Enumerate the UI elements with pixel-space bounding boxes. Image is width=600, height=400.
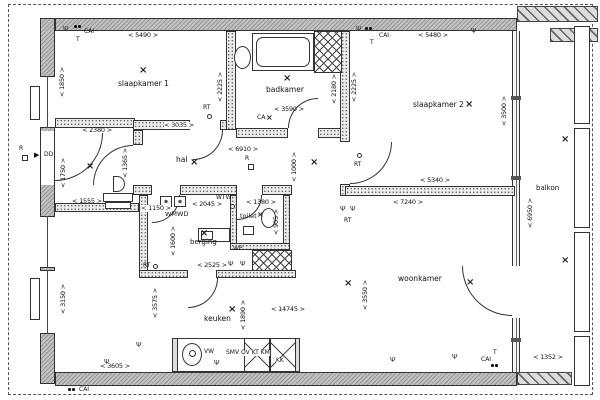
washbasin-badkamer (234, 46, 251, 69)
rt-vent-icon (207, 114, 212, 119)
dim-6910: < 6910 > (228, 146, 258, 153)
light-icon: × (310, 158, 318, 168)
wtw-label: WTW (216, 195, 232, 201)
rt-label: RT (143, 263, 150, 269)
t-label-top-right: T (370, 40, 374, 46)
dim-1365: < 1365 > (122, 144, 129, 178)
dim-1150: < 1150 > (141, 205, 171, 212)
wall-hal-bottom-1 (133, 185, 152, 195)
wall-badkamer-left (226, 31, 236, 130)
facade-glassline (516, 31, 517, 372)
dim-3150: < 3150 > (60, 278, 67, 314)
dim-2045: < 2045 > (192, 201, 222, 208)
meter-box-icon (22, 155, 28, 161)
rt-vent-icon (153, 264, 158, 269)
entrance-arrow-icon: ▶ (34, 152, 39, 159)
meter-box-icon (248, 164, 254, 170)
light-icon: × (561, 135, 569, 145)
balcony-railing-panel (574, 232, 590, 332)
wall-berging-bottom-2 (216, 270, 296, 278)
bathtub-inner (256, 37, 310, 67)
dim-2380: < 2380 > (82, 127, 112, 134)
dim-3590: < 3590 > (274, 106, 304, 113)
kitchen-tap (189, 350, 196, 357)
washer-box-wd (174, 196, 186, 207)
rt-label: RT (203, 105, 210, 111)
cai-dots-icon (365, 27, 368, 30)
dim-3575: < 3575 > (152, 282, 159, 318)
ca-label: CA (257, 115, 265, 121)
socket-icon: Ψ (63, 26, 69, 33)
facade-tick (511, 338, 521, 342)
window-glassline (47, 270, 48, 334)
dim-2225-right: < 2225 > (351, 66, 358, 102)
socket-icon: Ψ (214, 360, 220, 367)
window-glassline (47, 76, 48, 128)
rt-label: RT (354, 162, 361, 168)
kk-label: KK (276, 358, 284, 364)
front-door-opening (41, 131, 54, 185)
wall-toilet-left (230, 195, 237, 245)
dim-7240: < 7240 > (393, 199, 423, 206)
balcony-door-opening (511, 266, 521, 318)
light-icon: × (266, 114, 273, 122)
room-label-berging: berging (190, 239, 217, 246)
socket-icon: Ψ (356, 26, 362, 33)
dim-1750: < 1750 > (60, 152, 67, 188)
light-icon: × (257, 211, 264, 219)
socket-icon: Ψ (228, 261, 234, 268)
socket-icon: Ψ (350, 206, 356, 213)
light-icon: × (86, 162, 94, 172)
dim-1000: < 1000 > (291, 146, 298, 182)
r-label-entree: R (19, 146, 23, 152)
kitchen-counter-post-left (172, 338, 178, 372)
dim-1600: < 1600 > (170, 220, 177, 256)
light-icon: × (465, 100, 473, 110)
wall-slaapkamer2-bottom (345, 186, 515, 196)
installation-shaft (314, 31, 342, 73)
room-label-slaapkamer2: slaapkamer 2 (413, 101, 464, 109)
wall-neighbour-top (517, 6, 598, 22)
meterkast-cabinet-2 (105, 202, 131, 209)
wall-berging-bottom-1 (139, 270, 188, 278)
dim-1352: < 1352 > (533, 354, 563, 361)
balcony-railing-panel (574, 128, 590, 228)
room-label-badkamer: badkamer (266, 86, 304, 94)
dim-5340: < 5340 > (420, 177, 450, 184)
balcony-railing-panel (574, 26, 590, 124)
smv-ov-kt-km-label: SMV OV KT KM (226, 350, 270, 356)
dim-1890: < 1890 > (240, 294, 247, 330)
cv-shaft-block (252, 250, 292, 271)
dim-14745: < 14745 > (271, 306, 305, 313)
meterkast-cabinet (103, 193, 133, 202)
room-label-toilet: toilet (240, 213, 257, 220)
dim-5480: < 5480 > (418, 32, 448, 39)
light-icon: × (466, 278, 474, 288)
appliance-box-kk (270, 338, 296, 372)
dim-2525: < 2525 > (197, 262, 227, 269)
window-sill-outer-1 (30, 86, 40, 120)
balcony-slab-bottom (517, 372, 572, 385)
floor-plan-canvas: slaapkamer 1 badkamer slaapkamer 2 hal W… (0, 0, 600, 400)
dim-1380: < 1380 > (246, 199, 276, 206)
balcony-railing-panel (574, 336, 590, 386)
cai-label-bottom-left: CAI (79, 387, 89, 393)
cai-label-top-left: CAI (84, 29, 94, 35)
dim-2225-left: < 2225 > (217, 66, 224, 102)
room-label-slaapkamer1: slaapkamer 1 (118, 80, 169, 88)
wall-bottom (55, 372, 517, 386)
dim-3035: < 3035 > (164, 122, 194, 129)
light-icon: × (200, 229, 208, 239)
socket-icon: Ψ (104, 359, 110, 366)
wall-toilet-right (283, 195, 290, 245)
socket-icon: Ψ (240, 261, 246, 268)
wp-label: WP (233, 246, 243, 252)
light-icon: × (190, 158, 198, 168)
window-glassline (47, 216, 48, 268)
cai-dots-icon (491, 364, 494, 367)
dim-3500: < 3500 > (501, 90, 508, 126)
socket-icon: Ψ (390, 357, 396, 364)
cai-dots-icon (68, 388, 71, 391)
t-label-top-left: T (76, 37, 80, 43)
light-icon: × (228, 305, 236, 315)
light-icon: × (283, 74, 291, 84)
light-icon: × (139, 66, 147, 76)
socket-icon: Ψ (471, 28, 477, 35)
vw-label: VW (204, 349, 214, 355)
dim-905: < 905 > (273, 207, 280, 235)
dim-3550: < 3550 > (362, 274, 369, 310)
room-label-balkon: balkon (536, 185, 559, 192)
dim-1850: < 1850 > (59, 61, 66, 97)
socket-icon: Ψ (340, 206, 346, 213)
t-label-bottom-right: T (493, 350, 497, 356)
rt-vent-icon (357, 153, 362, 158)
cai-label-top-right: CAI (379, 33, 389, 39)
light-icon: × (344, 279, 352, 289)
dim-5490: < 5490 > (128, 32, 158, 39)
wall-entree-right (133, 130, 143, 145)
light-icon: × (561, 256, 569, 266)
room-label-woonkamer: woonkamer (398, 275, 442, 283)
wtw-unit (230, 204, 235, 209)
wall-badkamer-bottom-1 (236, 128, 288, 138)
dd-label: DD (44, 152, 53, 158)
rt-label: RT (344, 218, 351, 224)
wall-hal-bottom-3 (262, 185, 292, 195)
dim-1555: < 1555 > (72, 198, 102, 205)
socket-icon: Ψ (136, 342, 142, 349)
room-label-keuken: keuken (204, 315, 231, 323)
socket-icon: Ψ (452, 354, 458, 361)
wall-top (55, 18, 517, 31)
cai-dots-icon (74, 25, 77, 28)
facade-tick (511, 176, 521, 180)
cai-label-bottom-right: CAI (481, 357, 491, 363)
dim-2180: < 2180 > (331, 68, 338, 104)
toilet-cistern (243, 226, 254, 235)
dim-6950: < 6950 > (527, 192, 534, 228)
room-label-hal: hal (176, 156, 187, 164)
r-label-hal: R (245, 156, 249, 162)
window-sill-outer-2 (30, 278, 40, 320)
facade-tick (511, 96, 521, 100)
